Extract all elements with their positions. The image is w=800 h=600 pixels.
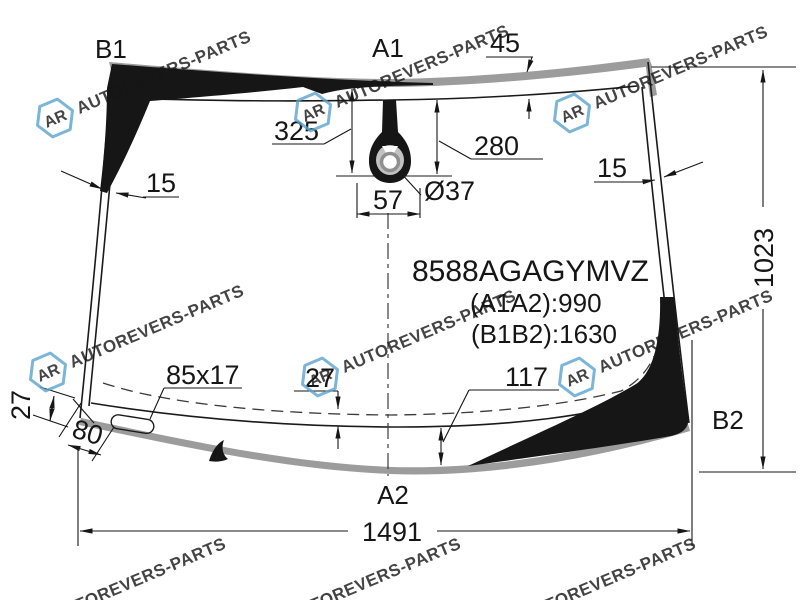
watermark: AR AUTOREVERS-PARTS [548, 15, 773, 136]
dim-80: 80 [59, 403, 114, 461]
dim-57-label: 57 [373, 185, 403, 215]
watermark-text: AUTOREVERS-PARTS [67, 281, 247, 372]
part-b1b2: (B1B2):1630 [471, 319, 617, 349]
dim-1491-label: 1491 [362, 517, 422, 547]
part-info: 8588AGAGYMVZ (A1A2):990 (B1B2):1630 [412, 255, 649, 349]
watermark: AUTOREVERS-PARTS [519, 534, 699, 600]
dim-57: 57 [357, 183, 420, 218]
dim-117-label: 117 [505, 362, 548, 392]
watermark: AUTOREVERS-PARTS [49, 534, 229, 600]
dim-27-left: 27 [6, 387, 75, 427]
label-b1: B1 [95, 34, 127, 64]
part-number: 8588AGAGYMVZ [412, 255, 649, 288]
watermark-text: AUTOREVERS-PARTS [519, 534, 699, 600]
watermark-text: AUTOREVERS-PARTS [49, 534, 229, 600]
label-a2: A2 [377, 480, 409, 510]
dim-80-label: 80 [69, 414, 107, 451]
dim-280-label: 280 [474, 131, 519, 161]
dim-1023-label: 1023 [749, 228, 779, 288]
ar-logo-text: AR [300, 101, 328, 126]
ar-logo-text: AR [42, 107, 70, 132]
dim-27-left-label: 27 [6, 390, 36, 420]
sensor-hole [382, 154, 399, 171]
dim-280: 280 [437, 100, 543, 174]
ar-logo-text: AR [35, 361, 63, 386]
sensor-mount [336, 100, 452, 183]
watermark-text: AUTOREVERS-PARTS [332, 21, 512, 112]
dim-15-right-label: 15 [597, 153, 627, 183]
windshield-diagram: 45 15 15 325 280 [0, 0, 800, 600]
dim-dia37-label: Ø37 [424, 176, 475, 206]
dim-15-left: 15 [61, 168, 179, 198]
label-b2: B2 [712, 405, 744, 435]
ar-logo-text: AR [559, 102, 587, 127]
windshield-diagram-svg: 45 15 15 325 280 [0, 0, 800, 600]
ar-logo-text: AR [564, 366, 592, 391]
dim-85x17: 85x17 [150, 360, 242, 419]
dim-85x17-label: 85x17 [166, 360, 240, 390]
dim-15-left-label: 15 [146, 168, 176, 198]
watermark-text: AUTOREVERS-PARTS [596, 286, 776, 377]
label-a1: A1 [372, 33, 404, 63]
